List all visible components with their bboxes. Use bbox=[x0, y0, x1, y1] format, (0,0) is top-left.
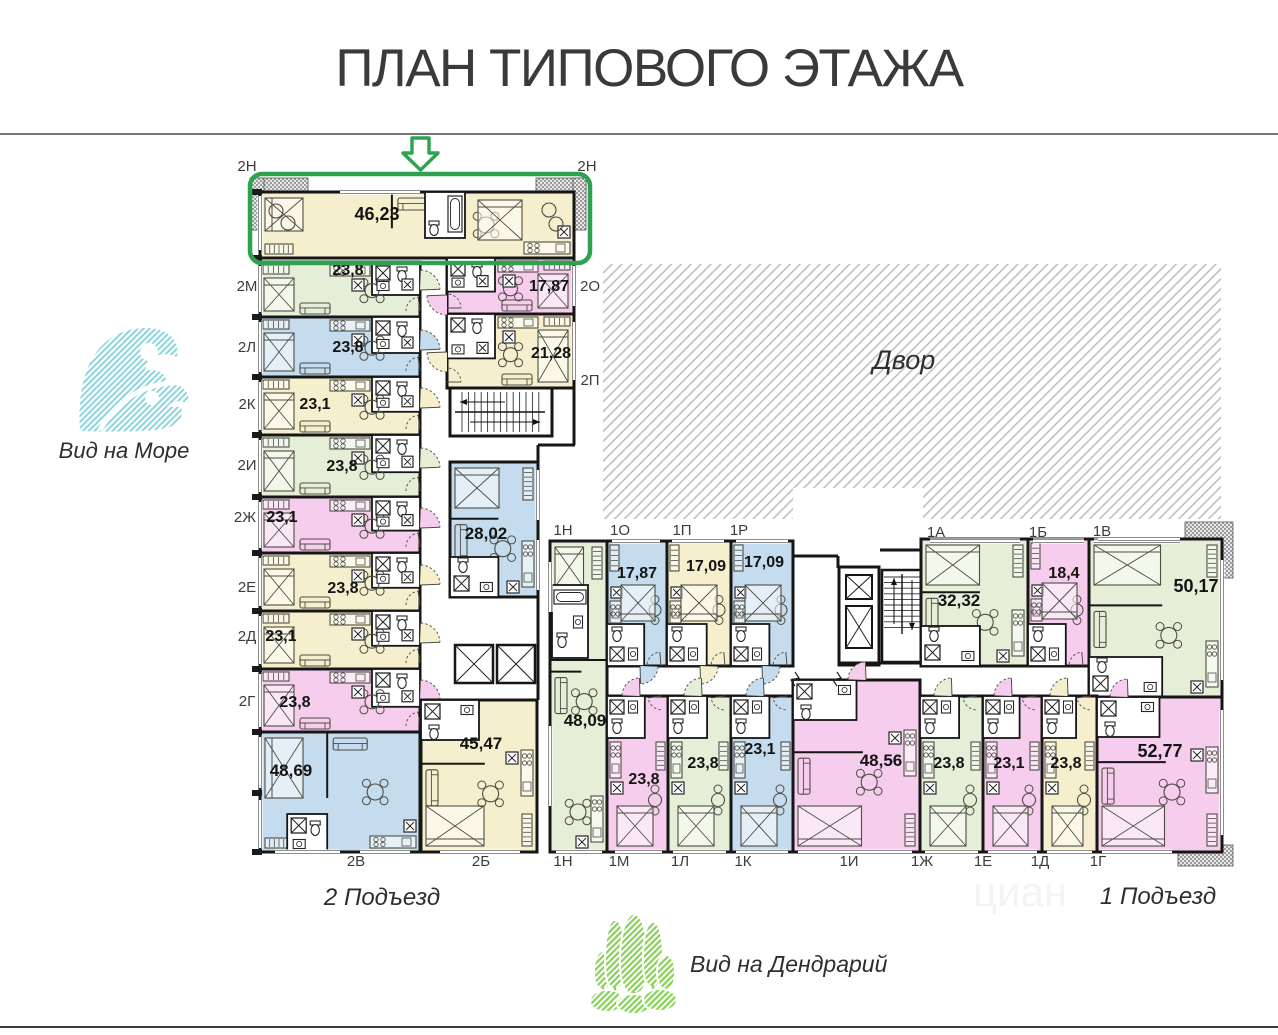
svg-text:1Л: 1Л bbox=[671, 853, 689, 870]
svg-text:1А: 1А bbox=[927, 524, 945, 541]
svg-text:2Б: 2Б bbox=[472, 853, 490, 870]
svg-text:23,8: 23,8 bbox=[326, 458, 357, 475]
svg-text:48,69: 48,69 bbox=[270, 761, 313, 780]
svg-text:18,4: 18,4 bbox=[1048, 565, 1079, 582]
svg-text:23,8: 23,8 bbox=[1050, 755, 1081, 772]
svg-text:2П: 2П bbox=[580, 372, 599, 389]
svg-text:23,8: 23,8 bbox=[933, 755, 964, 772]
svg-text:ПЛАН ТИПОВОГО ЭТАЖА: ПЛАН ТИПОВОГО ЭТАЖА bbox=[335, 39, 964, 98]
svg-text:28,02: 28,02 bbox=[465, 524, 508, 543]
svg-text:2М: 2М bbox=[237, 278, 258, 295]
svg-text:2Н: 2Н bbox=[237, 158, 256, 175]
svg-text:2К: 2К bbox=[238, 396, 255, 413]
svg-text:17,87: 17,87 bbox=[617, 565, 657, 582]
svg-text:1Н: 1Н bbox=[553, 522, 572, 539]
svg-text:23,1: 23,1 bbox=[265, 628, 296, 645]
svg-text:1 Подъезд: 1 Подъезд bbox=[1100, 883, 1216, 910]
svg-text:23,8: 23,8 bbox=[687, 755, 718, 772]
svg-text:Двор: Двор bbox=[870, 345, 936, 375]
svg-text:23,1: 23,1 bbox=[744, 741, 775, 758]
svg-text:17,87: 17,87 bbox=[529, 278, 569, 295]
svg-text:23,1: 23,1 bbox=[993, 755, 1024, 772]
svg-text:52,77: 52,77 bbox=[1137, 741, 1182, 761]
svg-text:1В: 1В bbox=[1093, 523, 1111, 540]
svg-text:21,28: 21,28 bbox=[531, 345, 571, 362]
svg-text:48,56: 48,56 bbox=[860, 751, 903, 770]
svg-text:23,8: 23,8 bbox=[628, 771, 659, 788]
svg-text:2Л: 2Л bbox=[238, 339, 256, 356]
svg-text:23,8: 23,8 bbox=[332, 339, 363, 356]
svg-text:1Р: 1Р bbox=[730, 522, 748, 539]
svg-text:45,47: 45,47 bbox=[460, 734, 503, 753]
svg-text:1М: 1М bbox=[609, 853, 630, 870]
svg-text:17,09: 17,09 bbox=[686, 558, 726, 575]
svg-text:23,1: 23,1 bbox=[266, 509, 297, 526]
svg-text:23,8: 23,8 bbox=[327, 580, 358, 597]
svg-text:1Г: 1Г bbox=[1090, 853, 1106, 870]
svg-text:32,32: 32,32 bbox=[938, 591, 981, 610]
svg-text:Вид на Море: Вид на Море bbox=[59, 438, 190, 463]
svg-text:2Г: 2Г bbox=[239, 693, 255, 710]
svg-text:23,1: 23,1 bbox=[299, 396, 330, 413]
svg-text:2В: 2В bbox=[347, 853, 365, 870]
svg-text:23,8: 23,8 bbox=[279, 694, 310, 711]
svg-text:2И: 2И bbox=[237, 457, 256, 474]
svg-text:48,09: 48,09 bbox=[564, 711, 607, 730]
svg-text:1О: 1О bbox=[610, 522, 630, 539]
svg-text:46,23: 46,23 bbox=[354, 204, 399, 224]
svg-text:1И: 1И bbox=[839, 853, 858, 870]
svg-text:2 Подъезд: 2 Подъезд bbox=[323, 884, 440, 911]
svg-text:1К: 1К bbox=[734, 853, 751, 870]
svg-text:1Н: 1Н bbox=[553, 853, 572, 870]
svg-text:Вид на Дендрарий: Вид на Дендрарий bbox=[690, 951, 888, 977]
svg-text:1Б: 1Б bbox=[1029, 524, 1047, 541]
svg-text:2Ж: 2Ж bbox=[234, 509, 256, 526]
svg-text:1П: 1П bbox=[672, 522, 691, 539]
svg-text:2Е: 2Е bbox=[238, 579, 256, 596]
svg-text:1Ж: 1Ж bbox=[911, 853, 933, 870]
svg-text:17,09: 17,09 bbox=[744, 554, 784, 571]
svg-text:2О: 2О bbox=[580, 278, 600, 295]
svg-text:2Д: 2Д bbox=[238, 628, 257, 645]
svg-text:50,17: 50,17 bbox=[1173, 576, 1218, 596]
svg-text:циан: циан bbox=[973, 868, 1067, 915]
